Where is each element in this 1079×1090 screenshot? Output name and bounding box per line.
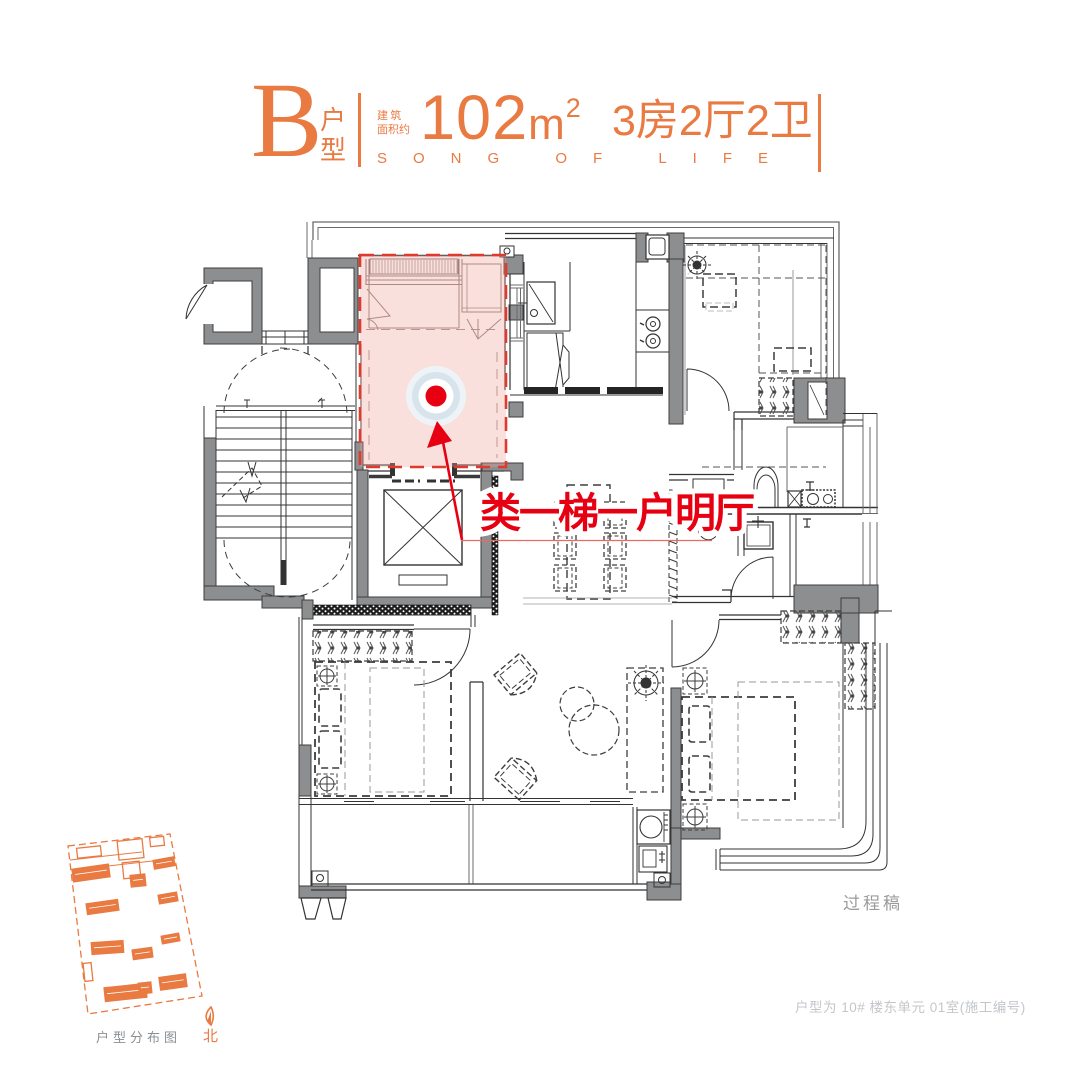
svg-text:类一梯一户明厅: 类一梯一户明厅	[480, 490, 754, 536]
